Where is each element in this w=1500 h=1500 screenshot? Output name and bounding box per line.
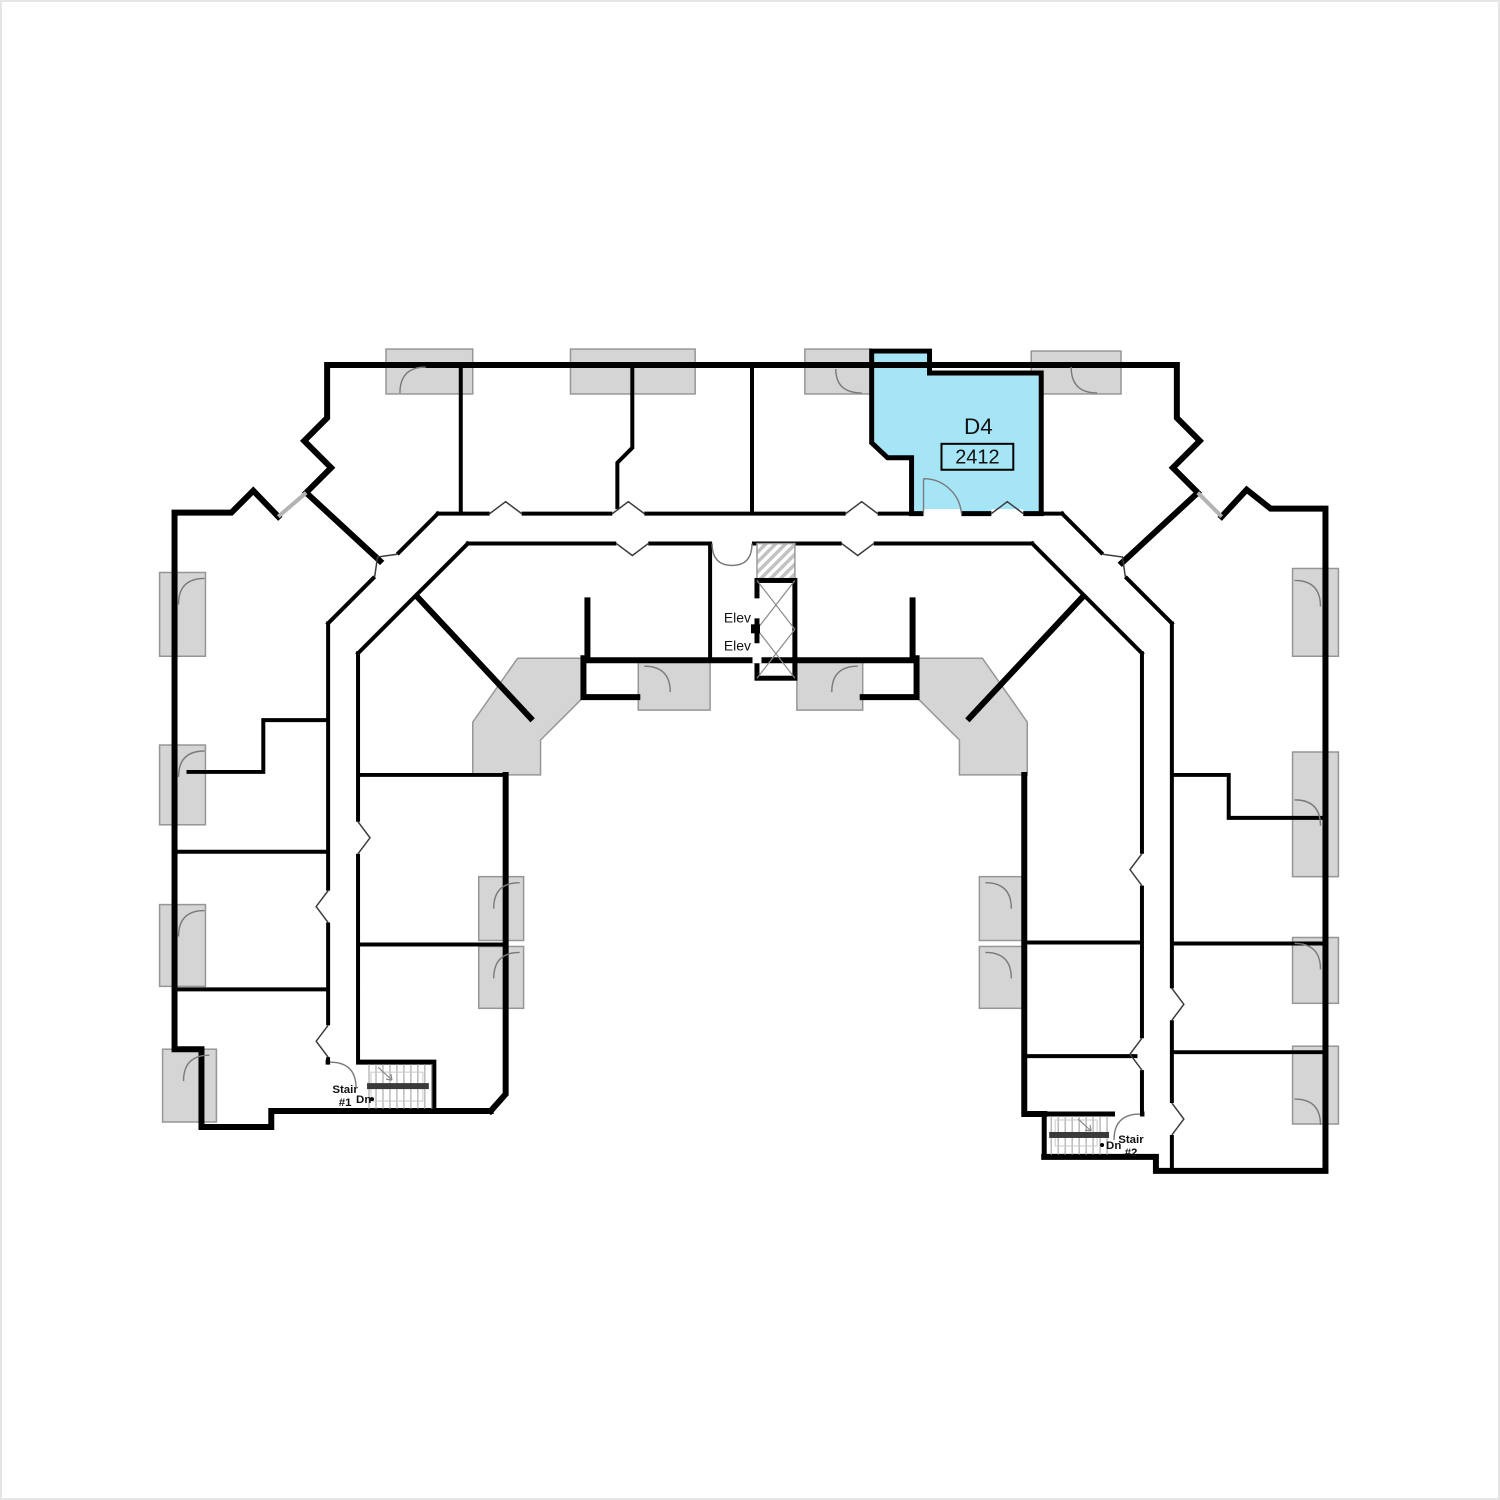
elevator-label-1: Elev — [724, 609, 751, 625]
door-opening-gaps — [328, 514, 1172, 1135]
stair-1-label-line2: #1 — [339, 1097, 352, 1109]
elevator-shaft — [757, 580, 795, 678]
corridor-and-partition-walls — [175, 365, 1326, 1171]
unit-number-label: 2412 — [955, 447, 999, 469]
stair-1-label-line1: Stair — [332, 1084, 358, 1096]
elevator-shaft-hatch — [757, 544, 795, 581]
floor-plan: Elev Elev Stair #1 Dn Dn Stair #2 — [2, 2, 1498, 1498]
stair-1-down-label: Dn — [356, 1094, 371, 1106]
highlighted-unit-d4[interactable] — [872, 351, 1042, 514]
stair-2-label-line2: #2 — [1125, 1147, 1138, 1159]
stair-1: Stair #1 Dn — [328, 1062, 434, 1111]
floor-plan-page: Elev Elev Stair #1 Dn Dn Stair #2 — [0, 0, 1500, 1500]
stair-2-label-line1: Stair — [1118, 1134, 1144, 1146]
unit-plan-code-label: D4 — [964, 414, 993, 439]
stair-2: Dn Stair #2 — [1044, 1114, 1144, 1159]
balcony-decks — [160, 349, 1339, 1124]
door-swing-arcs — [179, 367, 1321, 1140]
elevator-label-2: Elev — [724, 637, 751, 653]
door-chevrons — [316, 502, 1184, 1135]
